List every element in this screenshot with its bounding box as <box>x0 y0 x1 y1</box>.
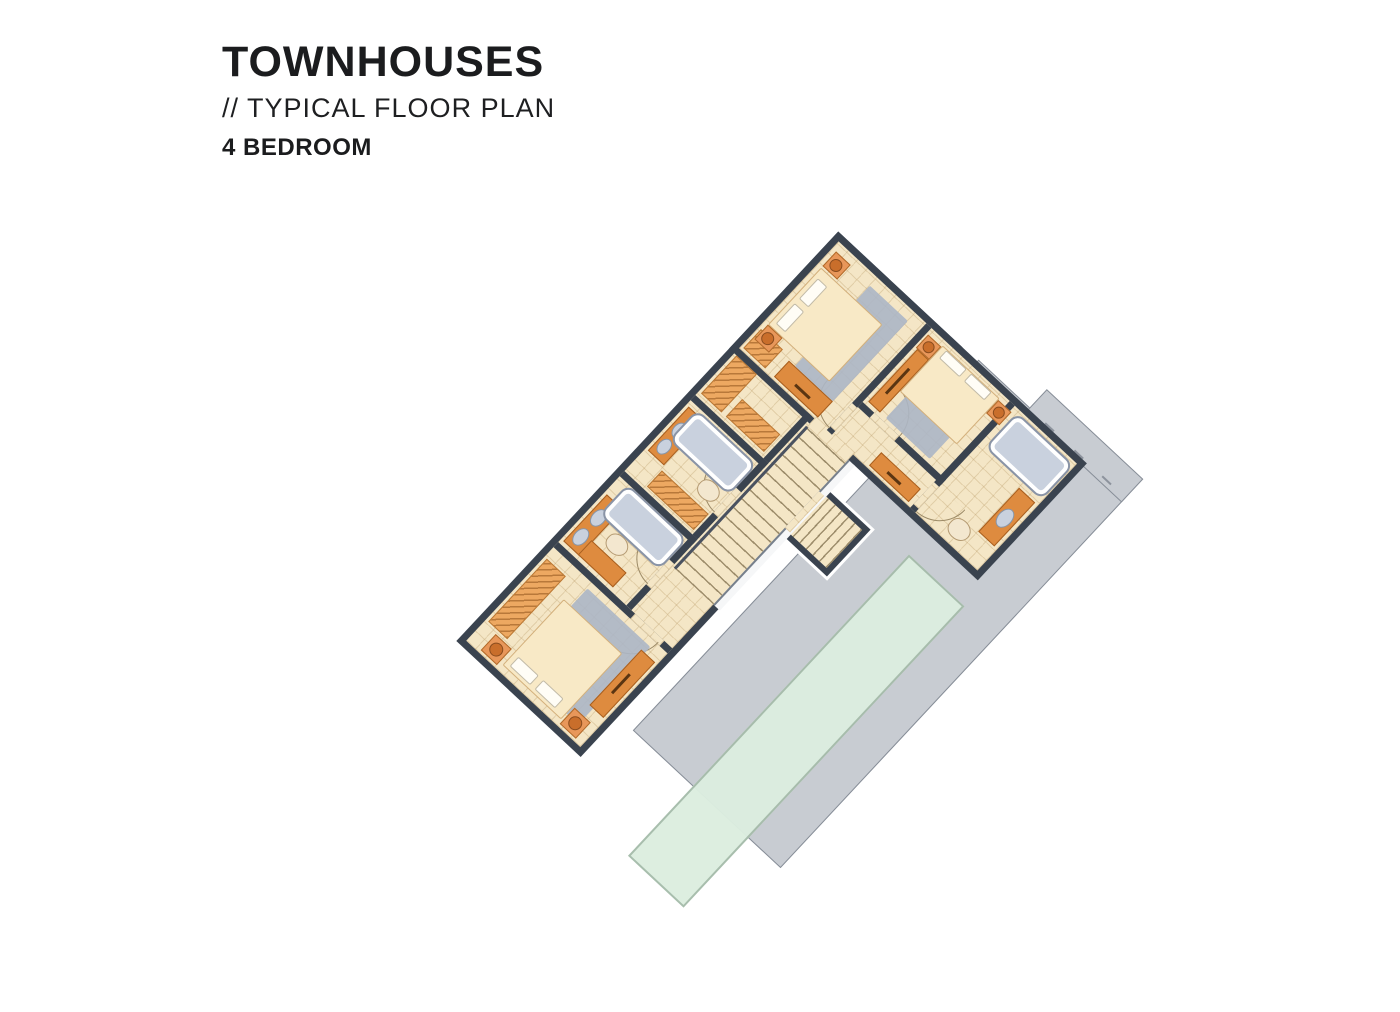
unit-type-label: 4 BEDROOM <box>222 134 555 162</box>
header: TOWNHOUSES // TYPICAL FLOOR PLAN 4 BEDRO… <box>222 40 555 162</box>
page-title: TOWNHOUSES <box>222 40 555 85</box>
page-subtitle: // TYPICAL FLOOR PLAN <box>222 93 555 124</box>
floor-plan <box>386 146 1244 1012</box>
